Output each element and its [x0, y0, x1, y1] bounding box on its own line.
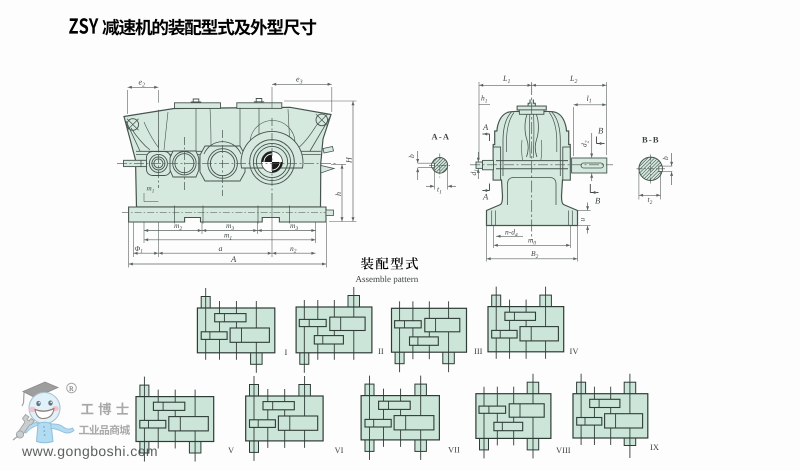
svg-text:A: A — [482, 192, 489, 202]
svg-text:VI: VI — [335, 445, 344, 455]
svg-text:www.gongboshi.com: www.gongboshi.com — [21, 443, 158, 459]
svg-text:IV: IV — [570, 346, 580, 356]
svg-text:h: h — [334, 192, 343, 196]
svg-text:b: b — [661, 156, 670, 160]
svg-text:I: I — [285, 347, 288, 357]
svg-text:B-B: B-B — [642, 135, 660, 145]
svg-text:III: III — [474, 346, 483, 356]
svg-text:Assemble pattern: Assemble pattern — [356, 274, 419, 284]
svg-text:VIII: VIII — [556, 445, 571, 455]
svg-text:A-A: A-A — [432, 132, 451, 142]
svg-text:A: A — [482, 122, 489, 132]
svg-text:II: II — [378, 346, 384, 356]
svg-text:IX: IX — [650, 442, 659, 452]
svg-text:b: b — [407, 154, 416, 158]
svg-text:R: R — [69, 385, 74, 393]
svg-text:B: B — [598, 126, 604, 136]
svg-text:V: V — [228, 445, 235, 455]
svg-text:a: a — [219, 244, 223, 253]
svg-text:B: B — [595, 196, 601, 206]
svg-text:A: A — [230, 254, 237, 264]
svg-text:u: u — [577, 218, 586, 222]
svg-text:VII: VII — [448, 445, 460, 455]
